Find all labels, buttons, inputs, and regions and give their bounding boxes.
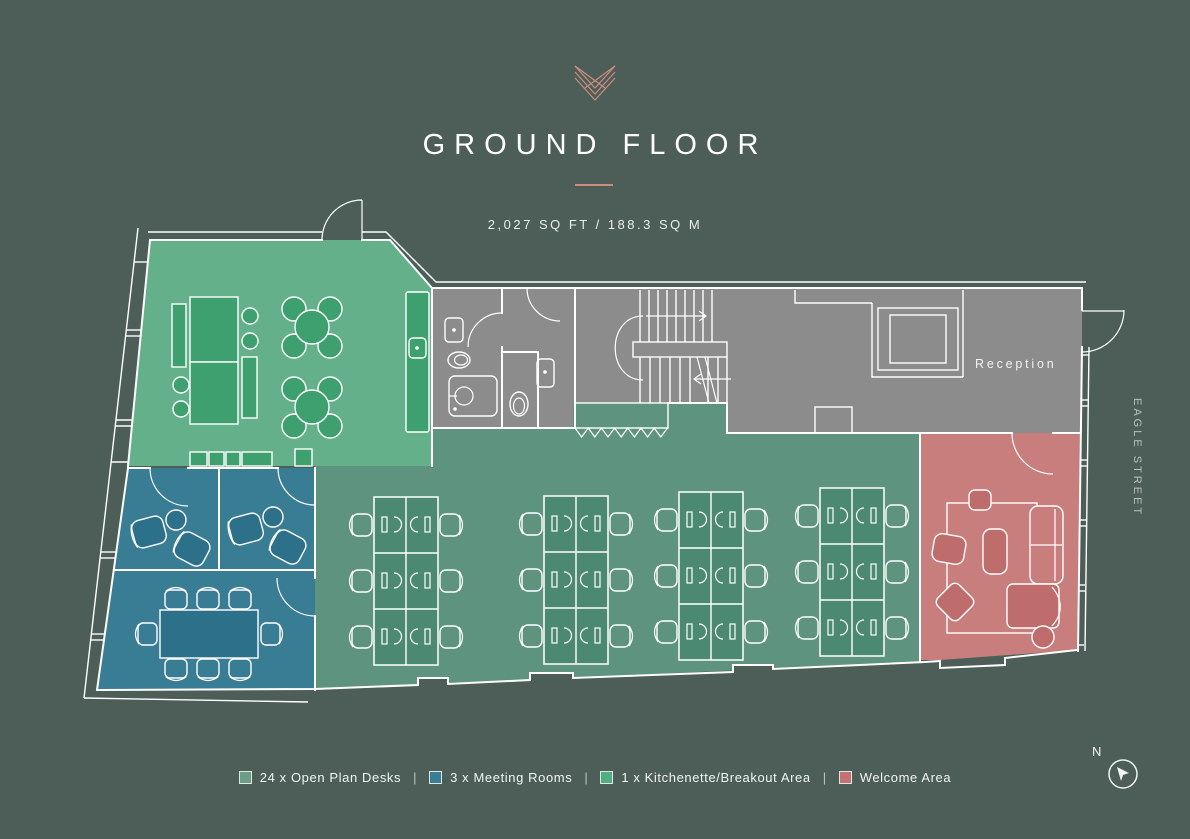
legend-label: 24 x Open Plan Desks [260, 770, 401, 785]
floor-plan-page: GROUND FLOOR 2,027 SQ FT / 188.3 SQ M Re… [0, 0, 1190, 839]
legend-swatch-kitchenette-icon [600, 771, 613, 784]
sofa [190, 362, 238, 424]
legend-item-kitchenette: 1 x Kitchenette/Breakout Area [600, 770, 810, 785]
armchair [931, 532, 967, 565]
stool [173, 377, 189, 393]
pouf [969, 490, 991, 510]
street-label: EAGLE STREET [1131, 398, 1143, 517]
brand-logo [0, 64, 1190, 104]
area-label: 2,027 SQ FT / 188.3 SQ M [0, 217, 1190, 232]
boardroom-table [160, 610, 258, 658]
legend-separator: | [823, 770, 827, 785]
floor-plan [0, 0, 1190, 839]
legend-item-open-plan-desks: 24 x Open Plan Desks [239, 770, 401, 785]
legend-label: Welcome Area [860, 770, 952, 785]
sofa [190, 297, 238, 362]
side-table [263, 507, 283, 527]
stool [242, 333, 258, 349]
legend-label: 1 x Kitchenette/Breakout Area [621, 770, 810, 785]
reception-label: Reception [975, 357, 1057, 371]
legend-separator: | [413, 770, 417, 785]
legend-item-meeting-rooms: 3 x Meeting Rooms [429, 770, 572, 785]
side-table [1032, 626, 1054, 648]
legend-item-welcome-area: Welcome Area [839, 770, 952, 785]
compass-north-label: N [1092, 744, 1102, 759]
stool [242, 308, 258, 324]
legend-swatch-desks-icon [239, 771, 252, 784]
title-divider [575, 184, 613, 186]
legend-label: 3 x Meeting Rooms [450, 770, 572, 785]
stool [173, 401, 189, 417]
chevron-logo-icon [563, 64, 627, 104]
bench [172, 304, 186, 367]
legend: 24 x Open Plan Desks | 3 x Meeting Rooms… [0, 770, 1190, 785]
lounge-chair [1007, 584, 1059, 628]
entrance-door [1082, 310, 1124, 352]
legend-swatch-welcome-icon [839, 771, 852, 784]
side-table [166, 510, 186, 530]
kitchen-counter [406, 292, 429, 432]
legend-swatch-meeting-icon [429, 771, 442, 784]
bench [242, 357, 257, 418]
coffee-table [983, 529, 1007, 574]
legend-separator: | [584, 770, 588, 785]
page-title: GROUND FLOOR [0, 129, 1190, 162]
